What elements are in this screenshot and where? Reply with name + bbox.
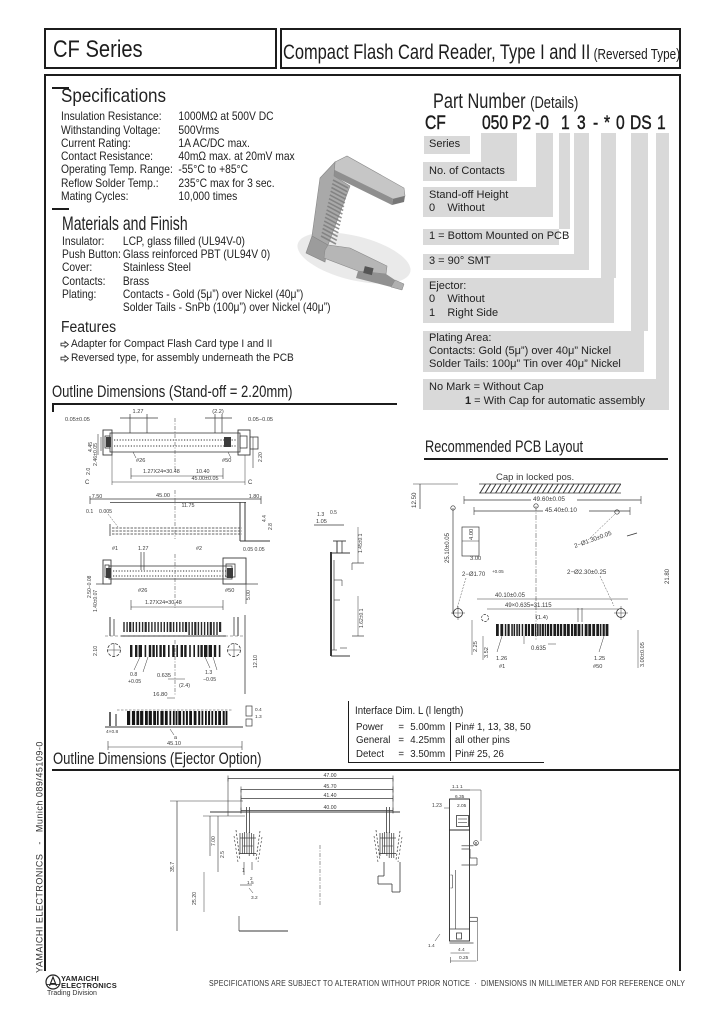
svg-text:45.40±0.10: 45.40±0.10 <box>545 507 577 514</box>
svg-text:+0.05: +0.05 <box>492 569 504 574</box>
svg-text:+0.05: +0.05 <box>128 679 141 685</box>
svg-text:25.20: 25.20 <box>192 892 198 905</box>
svg-text:2.10: 2.10 <box>93 646 99 656</box>
svg-text:2−Ø2.30±0.25: 2−Ø2.30±0.25 <box>567 569 607 576</box>
svg-text:0.25: 0.25 <box>459 955 469 961</box>
svg-text:45.70: 45.70 <box>324 784 337 790</box>
svg-text:2−Ø1.30±0.05: 2−Ø1.30±0.05 <box>573 530 613 550</box>
svg-text:0.05−0.05: 0.05−0.05 <box>248 417 273 423</box>
svg-text:1.45±0.1: 1.45±0.1 <box>358 533 364 553</box>
svg-text:#1: #1 <box>499 664 505 670</box>
svg-text:2.5: 2.5 <box>220 851 226 858</box>
svg-text:10.40: 10.40 <box>196 469 210 475</box>
svg-text:4×0.8: 4×0.8 <box>106 729 118 735</box>
svg-text:#50: #50 <box>222 458 231 464</box>
svg-text:47.00: 47.00 <box>324 773 337 779</box>
svg-text:2.05: 2.05 <box>457 803 467 809</box>
svg-text:(1.4): (1.4) <box>536 615 548 621</box>
svg-text:C: C <box>85 480 90 486</box>
svg-text:1.62±0.1: 1.62±0.1 <box>359 608 365 628</box>
svg-text:B: B <box>475 841 478 846</box>
svg-text:1.27: 1.27 <box>133 409 144 415</box>
svg-text:2.46±0.05: 2.46±0.05 <box>93 443 99 466</box>
svg-text:0.05 0.05: 0.05 0.05 <box>243 547 265 553</box>
svg-text:#50: #50 <box>593 664 602 670</box>
svg-text:1.1 1: 1.1 1 <box>452 784 463 790</box>
svg-text:4.00: 4.00 <box>469 529 475 540</box>
svg-text:1.80: 1.80 <box>249 494 260 500</box>
svg-text:1.26: 1.26 <box>496 656 507 662</box>
svg-text:40.00: 40.00 <box>324 805 337 811</box>
svg-text:0.4: 0.4 <box>255 707 262 713</box>
svg-text:21.80: 21.80 <box>665 568 671 584</box>
svg-text:45.00±0.05: 45.00±0.05 <box>192 476 219 482</box>
svg-text:1.27X24=30.48: 1.27X24=30.48 <box>143 469 180 475</box>
svg-text:4.4: 4.4 <box>458 947 465 953</box>
svg-text:#50: #50 <box>225 588 234 594</box>
svg-text:#26: #26 <box>138 588 147 594</box>
svg-text:2.20: 2.20 <box>258 452 264 462</box>
svg-text:1.23: 1.23 <box>432 803 442 809</box>
svg-text:11.75: 11.75 <box>181 503 194 509</box>
svg-text:#26: #26 <box>136 458 145 464</box>
svg-text:7.50: 7.50 <box>92 494 103 500</box>
svg-text:#2: #2 <box>196 546 202 552</box>
svg-text:C: C <box>248 480 253 486</box>
svg-text:0.635: 0.635 <box>531 646 547 652</box>
svg-text:0.05±0.05: 0.05±0.05 <box>65 417 90 423</box>
svg-text:2−Ø1.70: 2−Ø1.70 <box>462 572 486 578</box>
svg-text:25.10±0.05: 25.10±0.05 <box>445 532 451 563</box>
svg-text:40.10±0.05: 40.10±0.05 <box>495 593 526 599</box>
svg-text:45.10: 45.10 <box>167 741 181 747</box>
svg-text:16.80: 16.80 <box>153 692 168 698</box>
svg-text:49×0.635=31.115: 49×0.635=31.115 <box>505 603 552 609</box>
svg-text:45.00: 45.00 <box>156 493 170 499</box>
svg-text:1.27: 1.27 <box>138 546 149 552</box>
svg-text:0.8: 0.8 <box>130 672 137 678</box>
svg-text:0.005: 0.005 <box>99 509 112 515</box>
svg-text:0.1: 0.1 <box>86 509 93 515</box>
svg-text:2.8: 2.8 <box>268 523 274 530</box>
svg-text:3.52: 3.52 <box>484 647 490 658</box>
svg-text:7.00: 7.00 <box>211 836 217 846</box>
svg-text:Cap in locked pos.: Cap in locked pos. <box>496 472 574 483</box>
svg-text:0.5: 0.5 <box>330 510 337 516</box>
svg-text:(2.4): (2.4) <box>179 683 190 689</box>
svg-text:4.4: 4.4 <box>262 515 268 522</box>
svg-text:#1: #1 <box>112 546 118 552</box>
svg-text:1.3: 1.3 <box>317 512 324 518</box>
svg-text:1.4: 1.4 <box>428 943 435 949</box>
svg-text:1.05: 1.05 <box>316 519 327 525</box>
svg-text:−0.05: −0.05 <box>203 677 216 683</box>
svg-text:1: 1 <box>242 868 245 874</box>
svg-text:49.60±0.05: 49.60±0.05 <box>533 496 565 503</box>
svg-text:3.00: 3.00 <box>470 556 481 562</box>
svg-text:3.00±0.05: 3.00±0.05 <box>640 642 646 667</box>
svg-text:3.2: 3.2 <box>251 895 258 901</box>
svg-text:41.40: 41.40 <box>324 793 337 799</box>
svg-text:1.40±0.07: 1.40±0.07 <box>93 590 99 612</box>
svg-text:0.635: 0.635 <box>157 673 171 679</box>
svg-text:5.00: 5.00 <box>246 590 252 600</box>
svg-text:1.25: 1.25 <box>594 656 605 662</box>
svg-text:1.27X24=30.48: 1.27X24=30.48 <box>145 600 182 606</box>
svg-text:12.10: 12.10 <box>253 655 259 668</box>
svg-text:(2.2): (2.2) <box>212 409 224 415</box>
svg-text:2.25: 2.25 <box>473 641 479 652</box>
svg-text:35.7: 35.7 <box>170 862 176 872</box>
svg-text:1.3: 1.3 <box>255 714 262 720</box>
svg-text:1.5: 1.5 <box>247 880 254 886</box>
svg-text:12.50: 12.50 <box>411 492 418 508</box>
svg-text:2.0: 2.0 <box>86 468 92 475</box>
svg-text:1.3: 1.3 <box>205 670 212 676</box>
